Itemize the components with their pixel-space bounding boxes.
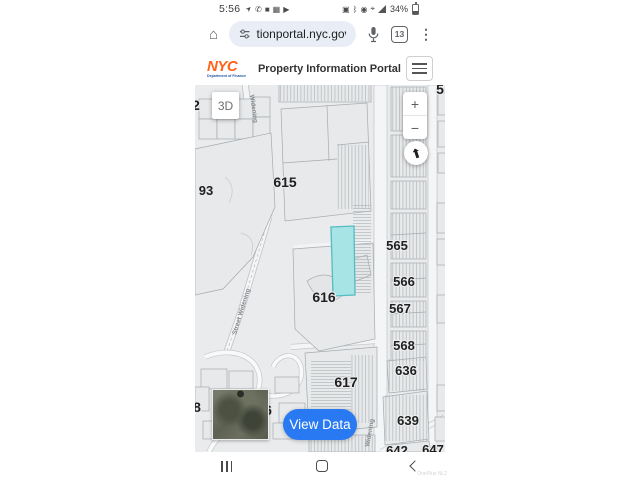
status-bar: 5:56 ➤ ✆ ■ ▦ ▶ ▣ ᛒ ◉ ⌖ 34% — [195, 0, 445, 16]
whatsapp-icon: ✆ — [255, 5, 262, 14]
block-label: 568 — [393, 338, 415, 353]
nyc-dof-logo[interactable]: NYC Department of Finance — [207, 59, 246, 79]
tab-switcher[interactable]: 13 — [391, 26, 408, 43]
signal-icon — [378, 5, 386, 13]
screenshot-page: 5:56 ➤ ✆ ■ ▦ ▶ ▣ ᛒ ◉ ⌖ 34% ⌂ — [0, 0, 640, 480]
selected-lot[interactable] — [331, 226, 355, 296]
home-icon[interactable]: ⌂ — [209, 27, 218, 42]
back-icon[interactable] — [409, 460, 420, 471]
android-nav-bar: OnePlus NL2 — [195, 452, 445, 480]
block-label: 93 — [199, 183, 213, 198]
app-icon: ■ — [265, 5, 270, 14]
menu-button[interactable] — [406, 56, 433, 81]
notification-icons: ➤ ✆ ■ ▦ ▶ — [246, 5, 289, 14]
location-icon: ◉ — [360, 5, 367, 14]
block-label: 647 — [422, 442, 444, 452]
block-label: 636 — [395, 363, 417, 378]
bluetooth-icon: ᛒ — [353, 5, 358, 14]
block-label: 639 — [397, 413, 419, 428]
compass-button[interactable]: ⬆ — [404, 141, 428, 165]
block-label-partial: 5 — [436, 85, 444, 97]
block-label: 565 — [386, 238, 408, 253]
vibrate-icon: ⌖ — [370, 4, 375, 14]
app-icon-2: ▦ — [273, 5, 281, 14]
clock: 5:56 — [219, 3, 240, 15]
compass-needle-icon: ⬆ — [409, 145, 423, 161]
page-title: Property Information Portal — [258, 63, 401, 75]
dof-logo-text: Department of Finance — [207, 75, 246, 79]
browser-menu-icon[interactable]: ⋮ — [419, 26, 433, 43]
block-label-partial: 8 — [195, 399, 201, 415]
block-label-partial: 2 — [195, 97, 200, 113]
block-label: 617 — [334, 374, 358, 390]
recents-icon[interactable] — [221, 461, 232, 472]
phone-screen: 5:56 ➤ ✆ ■ ▦ ▶ ▣ ᛒ ◉ ⌖ 34% ⌂ — [195, 0, 445, 480]
screenshot-icon: ▣ — [342, 5, 350, 14]
browser-toolbar: ⌂ tionportal.nyc.gov 13 ⋮ — [195, 16, 445, 52]
nyc-logo-text: NYC — [207, 59, 246, 74]
map[interactable]: Widening Street Widening Widening 615 61… — [195, 85, 445, 452]
tune-icon — [239, 28, 250, 40]
url-text: tionportal.nyc.gov — [256, 27, 346, 41]
block-label: 567 — [389, 301, 411, 316]
aerial-thumbnail[interactable] — [212, 389, 269, 440]
home-nav-icon[interactable] — [316, 460, 328, 472]
system-icons: ▣ ᛒ ◉ ⌖ 34% — [342, 4, 419, 15]
zoom-control: + − — [403, 92, 427, 139]
address-bar[interactable]: tionportal.nyc.gov — [229, 21, 356, 47]
view-data-label: View Data — [289, 417, 350, 432]
microphone-icon[interactable] — [367, 26, 380, 43]
zoom-out-button[interactable]: − — [403, 116, 427, 139]
block-label: 566 — [393, 274, 415, 289]
block-label: 616 — [312, 289, 336, 305]
battery-icon — [412, 4, 419, 15]
youtube-icon: ▶ — [283, 5, 289, 14]
device-watermark: OnePlus NL2 — [417, 471, 447, 477]
site-header: NYC Department of Finance Property Infor… — [195, 52, 445, 85]
block-label: 615 — [273, 174, 297, 190]
navigation-icon: ➤ — [244, 4, 254, 14]
zoom-in-button[interactable]: + — [403, 92, 427, 116]
tab-count: 13 — [395, 29, 404, 39]
block-label: 642 — [386, 443, 408, 452]
battery-percent: 34% — [390, 4, 408, 14]
3d-toggle-button[interactable]: 3D — [212, 92, 239, 119]
3d-label: 3D — [218, 99, 233, 113]
view-data-button[interactable]: View Data — [283, 409, 357, 440]
